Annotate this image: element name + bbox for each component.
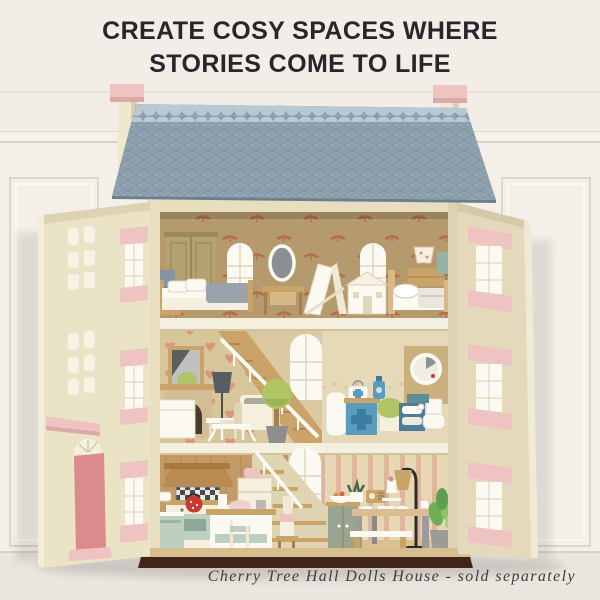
right-door-panel bbox=[458, 203, 538, 558]
roof bbox=[100, 100, 510, 210]
kitchen-dining-floor bbox=[154, 447, 462, 552]
dollhouse-illustration bbox=[0, 0, 600, 600]
headline-line-1: CREATE COSY SPACES WHERE bbox=[0, 15, 600, 48]
left-door-panel bbox=[38, 202, 150, 568]
headline-line-2: STORIES COME TO LIFE bbox=[0, 48, 600, 81]
radio bbox=[366, 490, 386, 503]
headline: CREATE COSY SPACES WHERE STORIES COME TO… bbox=[0, 15, 600, 81]
bathtub bbox=[326, 392, 346, 436]
arched-window-middle bbox=[290, 334, 322, 400]
living-floor bbox=[155, 331, 448, 443]
medicine-cabinet bbox=[344, 398, 380, 435]
teal-cabinet bbox=[437, 252, 448, 274]
bedroom-floor bbox=[151, 212, 449, 318]
bed-left bbox=[158, 279, 253, 314]
product-hero-image: CREATE COSY SPACES WHERE STORIES COME TO… bbox=[0, 0, 600, 600]
white-chest bbox=[155, 400, 195, 438]
picture-rail bbox=[0, 91, 600, 93]
product-caption: Cherry Tree Hall Dolls House - sold sepa… bbox=[208, 568, 576, 586]
house-body bbox=[148, 200, 462, 556]
range-hood bbox=[162, 463, 234, 487]
kettle bbox=[186, 494, 203, 512]
base-platform bbox=[138, 548, 473, 568]
bathroom-sink bbox=[407, 394, 429, 403]
